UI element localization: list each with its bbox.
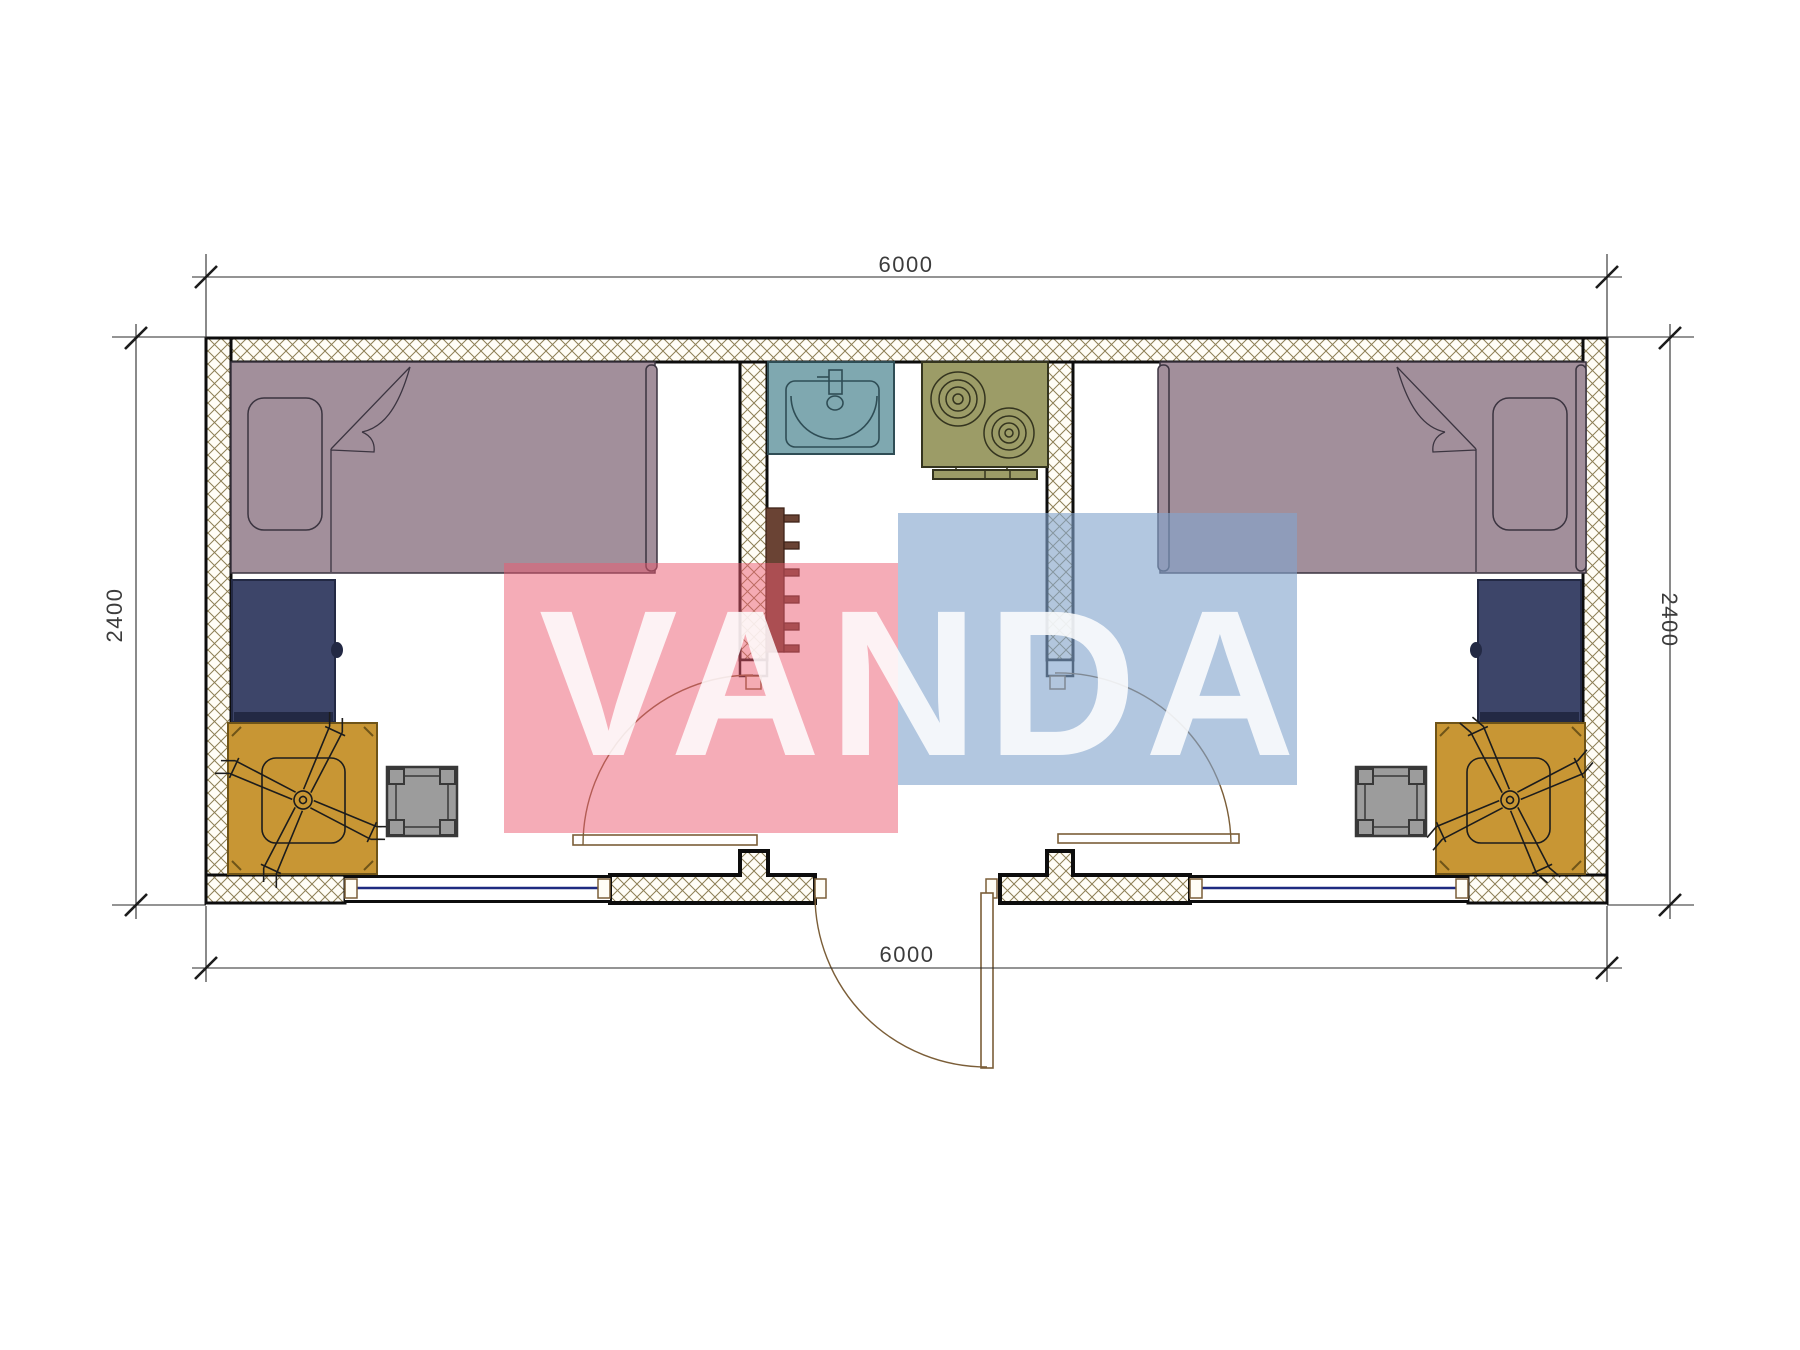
dim-top-label: 6000 bbox=[879, 252, 934, 277]
pillow-right bbox=[1493, 398, 1567, 530]
window-right bbox=[1190, 876, 1468, 902]
window-left-frame-a bbox=[345, 879, 357, 898]
desk-left bbox=[228, 723, 377, 874]
wall-bottom-right-segment bbox=[1000, 851, 1190, 903]
floor-plan-drawing: 6000 6000 2400 2400 VANDA bbox=[0, 0, 1800, 1350]
dim-right-label: 2400 bbox=[1657, 593, 1682, 648]
wall-bottom-right-corner bbox=[1468, 875, 1607, 903]
dimension-left: 2400 bbox=[102, 324, 206, 919]
entry-door-swing bbox=[815, 895, 987, 1067]
dim-left-label: 2400 bbox=[102, 588, 127, 643]
window-left-frame-b bbox=[598, 879, 610, 898]
watermark-text: VANDA bbox=[539, 568, 1303, 800]
wardrobe-right bbox=[1478, 580, 1581, 722]
entry-door-leaf bbox=[981, 893, 993, 1068]
floor-plan-canvas: 6000 6000 2400 2400 VANDA bbox=[0, 0, 1800, 1350]
window-left bbox=[345, 876, 610, 902]
wardrobe-right-knob bbox=[1470, 642, 1482, 658]
desk-right bbox=[1436, 723, 1585, 874]
pillow-left bbox=[248, 398, 322, 530]
wall-bottom-left-segment bbox=[610, 851, 815, 903]
bed-left-footboard bbox=[646, 365, 657, 571]
wardrobe-left-edge bbox=[234, 712, 333, 721]
stool-right bbox=[1356, 767, 1426, 836]
dimension-top: 6000 bbox=[192, 252, 1622, 338]
dimension-right: 2400 bbox=[1607, 324, 1694, 919]
sink-unit bbox=[768, 362, 894, 454]
dimension-bottom: 6000 bbox=[192, 906, 1622, 982]
wardrobe-right-edge bbox=[1480, 712, 1579, 721]
stove-unit bbox=[922, 362, 1048, 479]
stool-left bbox=[387, 767, 457, 836]
wall-top bbox=[206, 338, 1607, 362]
wardrobe-left-knob bbox=[331, 642, 343, 658]
dim-bottom-label: 6000 bbox=[880, 942, 935, 967]
wall-bottom-left-corner bbox=[206, 875, 345, 903]
window-right-frame-b bbox=[1456, 879, 1468, 898]
interior-door-left-leaf bbox=[573, 835, 757, 845]
window-right-frame-a bbox=[1190, 879, 1202, 898]
entry-door-frame-a bbox=[815, 879, 826, 898]
bed-right-headboard bbox=[1576, 365, 1586, 571]
interior-door-right-leaf bbox=[1058, 834, 1239, 843]
entry-door bbox=[815, 879, 997, 1068]
wardrobe-left bbox=[232, 580, 335, 722]
